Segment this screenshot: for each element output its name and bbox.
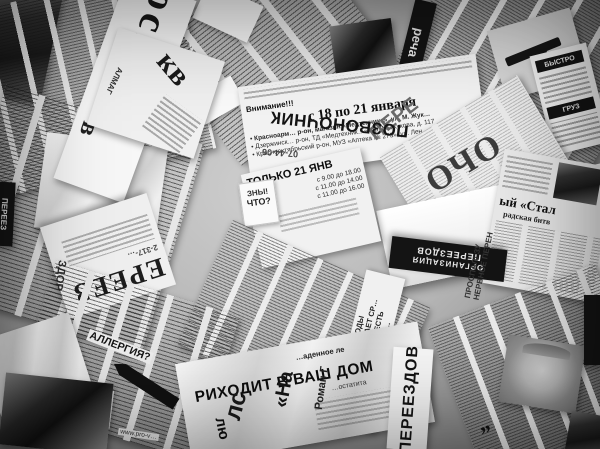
pereezdov-vertical-strip: ПЕРЕЕЗДОВ (386, 347, 433, 449)
face-photo-fragment (498, 334, 586, 413)
face-hair-shape (522, 341, 571, 360)
pereez-chip-label: ПЕРЕЕЗ (0, 198, 9, 231)
dark-photo-fragment-bottom-left (0, 373, 113, 449)
gruz-label: ГРУЗ (562, 102, 580, 113)
allergy-headline: АЛЛЕРГИЯ? (86, 329, 154, 365)
bystro-label: БЫСТРО (544, 54, 576, 68)
black-edge-strip (584, 295, 600, 365)
recha-fragment: реча (405, 26, 427, 58)
almag-ad-label: АЛМАГ (104, 66, 125, 96)
pereezdov-vertical-label: ПЕРЕЕЗДОВ (397, 344, 423, 449)
quote-mark: „ (473, 409, 493, 437)
newspaper-collage-photo: осква в кв АЛМАГ реча БЫСТРО ГРУЗ Вниман… (0, 0, 600, 449)
ad-text-texture (142, 94, 203, 153)
adennoe-fragment: …аденное ле (295, 345, 345, 362)
kv-headline: кв (149, 45, 197, 93)
article-intro-texture (502, 155, 553, 195)
article-photo-thumb (553, 162, 600, 205)
dark-corner-bottom-right (565, 410, 600, 449)
chto-box: ЗНЫ! ЧТО? (238, 179, 280, 228)
black-arrow-shape (111, 358, 180, 409)
